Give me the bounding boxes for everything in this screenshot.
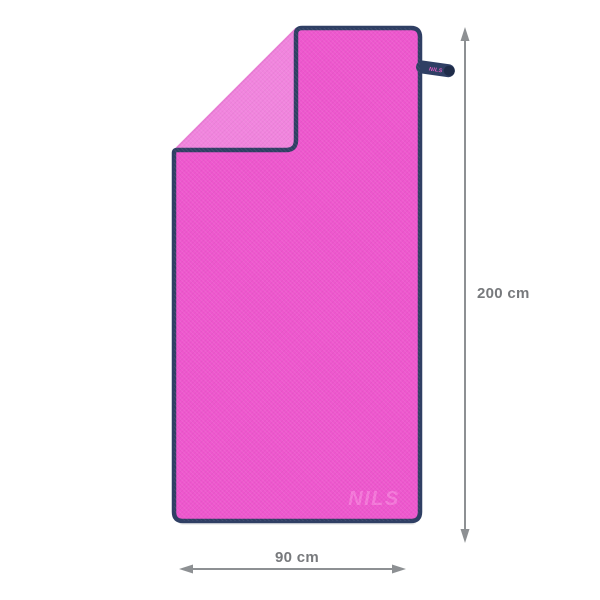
brand-watermark: NILS <box>348 488 400 510</box>
height-arrow-head-down <box>461 529 470 543</box>
width-dimension-label: 90 cm <box>275 549 319 566</box>
width-arrow-head-right <box>392 565 406 574</box>
height-dimension-arrow <box>461 27 470 543</box>
width-arrow-head-left <box>179 565 193 574</box>
height-dimension-label: 200 cm <box>477 285 530 302</box>
height-arrow-head-up <box>461 27 470 41</box>
towel-dimension-diagram: NILS NILS 200 cm 90 cm <box>0 0 600 600</box>
product-image: NILS NILS 200 cm 90 cm <box>0 0 600 600</box>
